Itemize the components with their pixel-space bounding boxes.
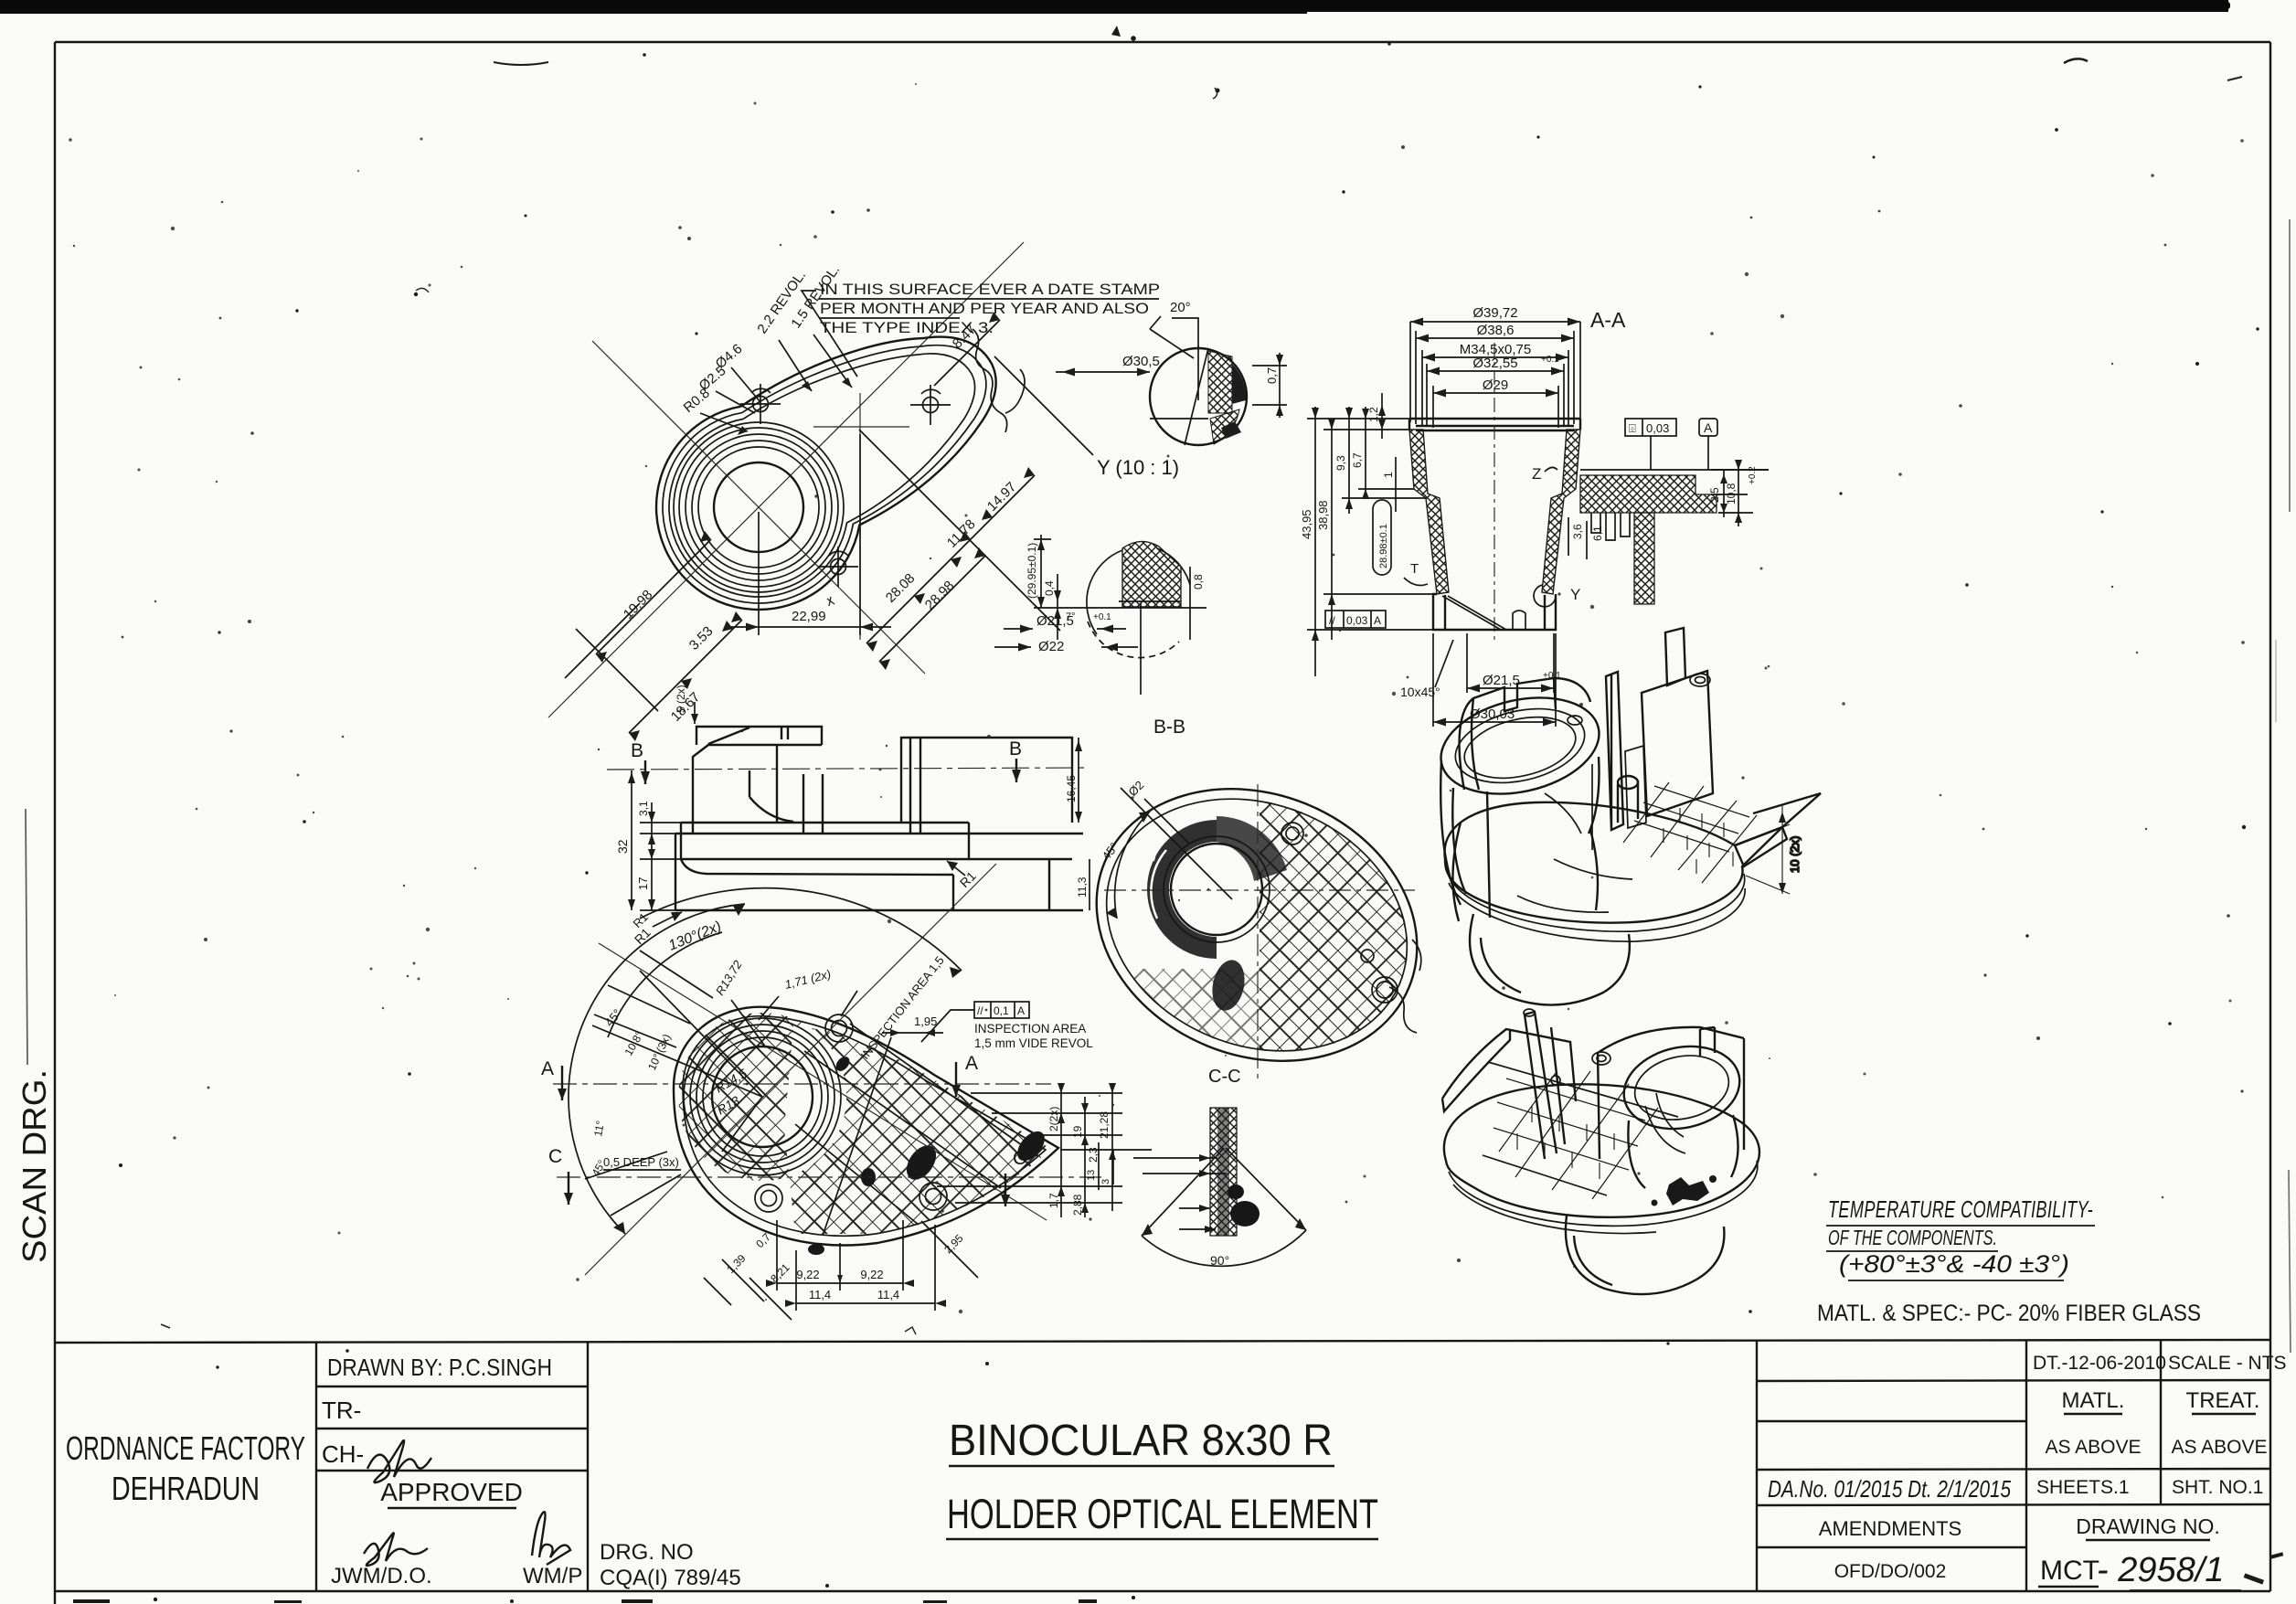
svg-text:38,98: 38,98 [1316,500,1330,530]
svg-text:3,1: 3,1 [637,801,650,816]
svg-text:5 (2x): 5 (2x) [675,685,687,713]
svg-text:0,03: 0,03 [1646,421,1669,435]
svg-text:A: A [965,1053,978,1074]
svg-text:9,22: 9,22 [796,1268,819,1281]
svg-text:SHEETS.1: SHEETS.1 [2036,1477,2130,1498]
svg-text:16,45: 16,45 [1065,775,1078,802]
svg-text:9,3: 9,3 [1334,455,1347,471]
svg-text:OFD/DO/002: OFD/DO/002 [1834,1561,1947,1582]
svg-text:B: B [631,740,643,761]
svg-text:19: 19 [1071,1125,1084,1138]
svg-text:BINOCULAR 8x30 R: BINOCULAR 8x30 R [949,1417,1333,1465]
svg-text:43,95: 43,95 [1300,509,1313,539]
svg-text:APPROVED: APPROVED [380,1478,523,1506]
svg-text:11,3: 11,3 [1076,876,1089,898]
svg-text:(+80°±3°& -40 ±3°): (+80°±3°& -40 ±3°) [1839,1250,2069,1278]
svg-text:DEHRADUN: DEHRADUN [112,1470,260,1507]
svg-text:21,28: 21,28 [1098,1111,1111,1139]
svg-text:6,7: 6,7 [1351,452,1364,468]
svg-text:C-C: C-C [1208,1067,1241,1087]
svg-text:90°: 90° [1210,1253,1229,1268]
svg-text:+0.1: +0.1 [1093,612,1111,622]
svg-text:1,7: 1,7 [1047,1193,1060,1208]
svg-text:SHT. NO.1: SHT. NO.1 [2172,1477,2263,1498]
svg-text:B: B [1009,738,1022,760]
svg-text:32: 32 [615,839,630,854]
svg-text:ORDNANCE FACTORY: ORDNANCE FACTORY [66,1429,305,1467]
svg-text:Ø39,72: Ø39,72 [1472,305,1517,321]
svg-text:Ø32,55: Ø32,55 [1472,356,1517,371]
svg-text:11,4: 11,4 [809,1288,831,1301]
svg-text:INSPECTION AREA: INSPECTION AREA [974,1022,1086,1036]
svg-text:1,5 mm VIDE REVOL: 1,5 mm VIDE REVOL [974,1036,1093,1050]
svg-text:SCALE - NTS: SCALE - NTS [2168,1353,2287,1374]
svg-text:10x45°: 10x45° [1400,685,1440,699]
svg-text:MATL. & SPEC:- PC- 20% FIBER: MATL. & SPEC:- PC- 20% FIBER GLASS [1817,1301,2201,1326]
svg-text:MATL.: MATL. [2062,1388,2125,1413]
svg-text:Z: Z [1532,465,1541,483]
svg-text:AS ABOVE: AS ABOVE [2045,1437,2141,1458]
svg-text:A: A [1704,420,1713,435]
svg-text:11°: 11° [591,1120,607,1138]
svg-text:WM/P: WM/P [523,1564,582,1588]
svg-text:TREAT.: TREAT. [2186,1388,2260,1413]
svg-text:CH-: CH- [322,1440,364,1468]
svg-text:AS ABOVE: AS ABOVE [2171,1437,2267,1458]
svg-text:HOLDER OPTICAL ELEMENT: HOLDER OPTICAL ELEMENT [947,1491,1378,1537]
svg-text:C: C [1013,1148,1026,1169]
svg-text:3: 3 [1100,1179,1111,1184]
svg-text:DT.-12-06-2010: DT.-12-06-2010 [2033,1353,2166,1374]
svg-text:13: 13 [1086,1170,1097,1181]
svg-text:A-A: A-A [1590,308,1626,332]
svg-text:0,7: 0,7 [1265,367,1279,384]
svg-text://: // [1329,614,1335,627]
svg-text:0,5 DEEP (3x): 0,5 DEEP (3x) [603,1155,679,1169]
svg-text:CQA(I) 789/45: CQA(I) 789/45 [600,1566,741,1590]
svg-text:A: A [1374,614,1381,627]
svg-text:JWM/D.O.: JWM/D.O. [331,1564,432,1588]
svg-text:⌹: ⌹ [1629,421,1636,435]
svg-text:28.98±0.1: 28.98±0.1 [1378,524,1389,568]
svg-text://: // [977,1004,983,1017]
svg-text:DRAWING NO.: DRAWING NO. [2076,1514,2220,1538]
svg-text:IN THIS SURFACE EVER A DATE ST: IN THIS SURFACE EVER A DATE STAMP [820,281,1160,298]
svg-text:1,2: 1,2 [1367,407,1380,422]
svg-text:THE TYPE INDEX 3.: THE TYPE INDEX 3. [820,319,994,336]
svg-text:T: T [1410,561,1419,577]
svg-text:2,3: 2,3 [1087,1147,1100,1163]
svg-text:1: 1 [1382,472,1395,478]
svg-text:+0.1: +0.1 [1541,355,1559,365]
svg-text:C: C [548,1146,562,1167]
svg-text:20°: 20° [1170,300,1191,315]
svg-text:(29.95±0.1): (29.95±0.1) [1026,543,1038,599]
svg-text:TR-: TR- [322,1397,361,1424]
svg-text:OF THE COMPONENTS.: OF THE COMPONENTS. [1828,1226,1997,1249]
svg-text:2(2x): 2(2x) [1047,1107,1060,1131]
svg-text:+0.2: +0.2 [1748,466,1758,484]
svg-text:A: A [541,1058,554,1079]
svg-text:0,1: 0,1 [994,1004,1009,1017]
svg-text:Ø21,5: Ø21,5 [1036,613,1074,629]
svg-text:DRG. NO: DRG. NO [600,1540,694,1565]
svg-text:0,03: 0,03 [1346,614,1368,627]
svg-text:1,95: 1,95 [914,1014,937,1028]
svg-text:Y: Y [1570,586,1580,603]
svg-text:DA.No. 01/2015 Dt. 2/1/2015: DA.No. 01/2015 Dt. 2/1/2015 [1768,1475,2011,1503]
svg-text:Ø22: Ø22 [1038,639,1064,654]
svg-text:22,99: 22,99 [792,609,826,624]
svg-text:Ø29: Ø29 [1483,377,1508,393]
svg-text:10 (2x): 10 (2x) [1788,836,1802,873]
svg-text:SCAN DRG.: SCAN DRG. [16,1069,53,1263]
svg-text:Ø38,6: Ø38,6 [1477,323,1515,338]
svg-text:- 2958/1: - 2958/1 [2097,1551,2224,1589]
svg-text:DRAWN BY: P.C.SINGH: DRAWN BY: P.C.SINGH [327,1354,552,1381]
svg-text:17: 17 [636,877,650,890]
svg-text:PER MONTH AND PER YEAR AND ALS: PER MONTH AND PER YEAR AND ALSO [820,300,1149,317]
svg-text:TEMPERATURE COMPATIBILITY-: TEMPERATURE COMPATIBILITY- [1828,1195,2093,1223]
svg-text:2,88: 2,88 [1071,1194,1084,1216]
svg-text:A: A [1017,1004,1025,1017]
svg-text:Ø30,5: Ø30,5 [1122,354,1160,369]
svg-text:3,6: 3,6 [1571,524,1584,539]
svg-text:Ø21,5: Ø21,5 [1483,673,1520,688]
svg-text:0,8: 0,8 [1192,574,1205,590]
svg-text:0,4: 0,4 [1043,580,1056,596]
svg-text:11,4: 11,4 [877,1288,899,1301]
svg-text:AMENDMENTS: AMENDMENTS [1819,1517,1961,1540]
svg-text:B-B: B-B [1153,717,1185,738]
svg-text:10,8: 10,8 [1725,483,1738,505]
svg-text:2,5: 2,5 [1708,487,1721,503]
svg-text:9,22: 9,22 [860,1268,883,1281]
svg-text:MCT: MCT [2040,1556,2099,1586]
svg-text:Y (10 : 1): Y (10 : 1) [1097,456,1179,479]
svg-text:6,1: 6,1 [1591,526,1604,541]
